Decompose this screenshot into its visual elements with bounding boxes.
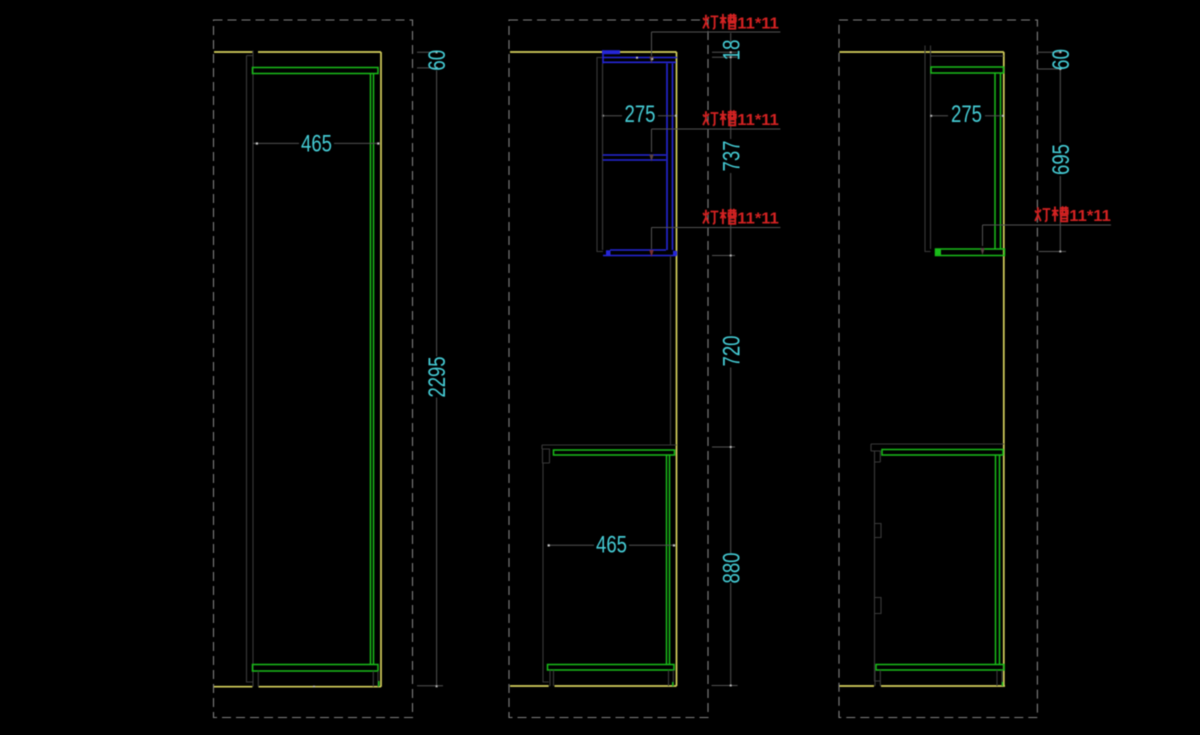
svg-text:465: 465 — [301, 130, 332, 157]
svg-text:2295: 2295 — [424, 357, 451, 398]
svg-text:60: 60 — [1048, 49, 1075, 70]
svg-text:465: 465 — [596, 532, 627, 559]
svg-text:275: 275 — [625, 101, 656, 128]
svg-text:11*11: 11*11 — [737, 15, 779, 32]
svg-text:11*11: 11*11 — [737, 211, 779, 228]
svg-text:720: 720 — [719, 336, 746, 367]
svg-text:737: 737 — [718, 141, 745, 172]
svg-text:18: 18 — [718, 40, 745, 61]
svg-text:11*11: 11*11 — [1069, 208, 1111, 225]
svg-text:695: 695 — [1048, 144, 1075, 175]
svg-text:275: 275 — [951, 101, 982, 128]
svg-text:880: 880 — [719, 553, 746, 584]
svg-text:11*11: 11*11 — [737, 112, 779, 129]
svg-text:60: 60 — [424, 50, 451, 71]
